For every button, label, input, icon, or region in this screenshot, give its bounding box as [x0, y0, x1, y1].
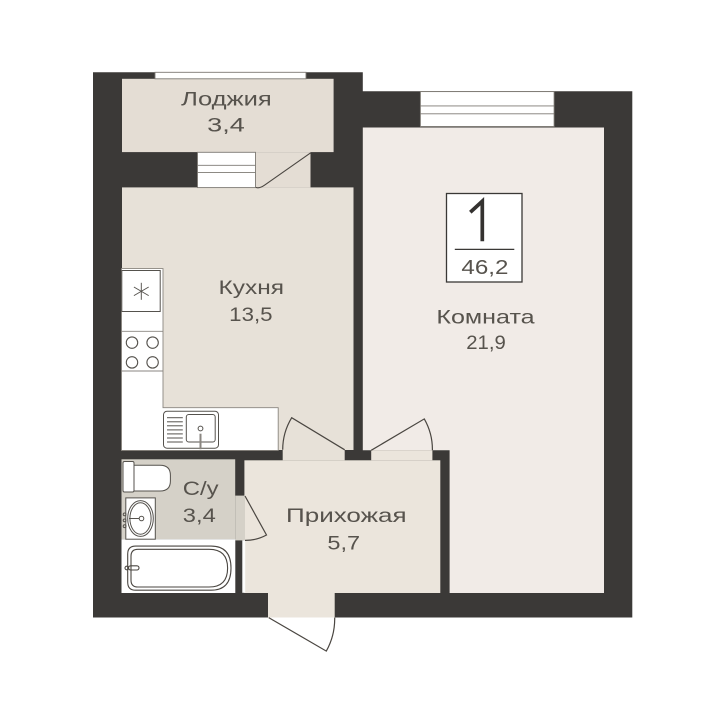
- svg-text:Комната: Комната: [436, 307, 534, 329]
- svg-text:Прихожая: Прихожая: [286, 505, 407, 527]
- svg-text:3,4: 3,4: [183, 505, 216, 527]
- svg-text:Лоджия: Лоджия: [181, 89, 272, 111]
- svg-text:13,5: 13,5: [229, 304, 273, 326]
- svg-text:21,9: 21,9: [466, 332, 506, 354]
- svg-text:С/у: С/у: [183, 478, 219, 500]
- svg-text:Кухня: Кухня: [219, 277, 285, 299]
- svg-text:5,7: 5,7: [327, 533, 360, 555]
- svg-text:3,4: 3,4: [207, 115, 245, 137]
- svg-text:46,2: 46,2: [461, 256, 508, 279]
